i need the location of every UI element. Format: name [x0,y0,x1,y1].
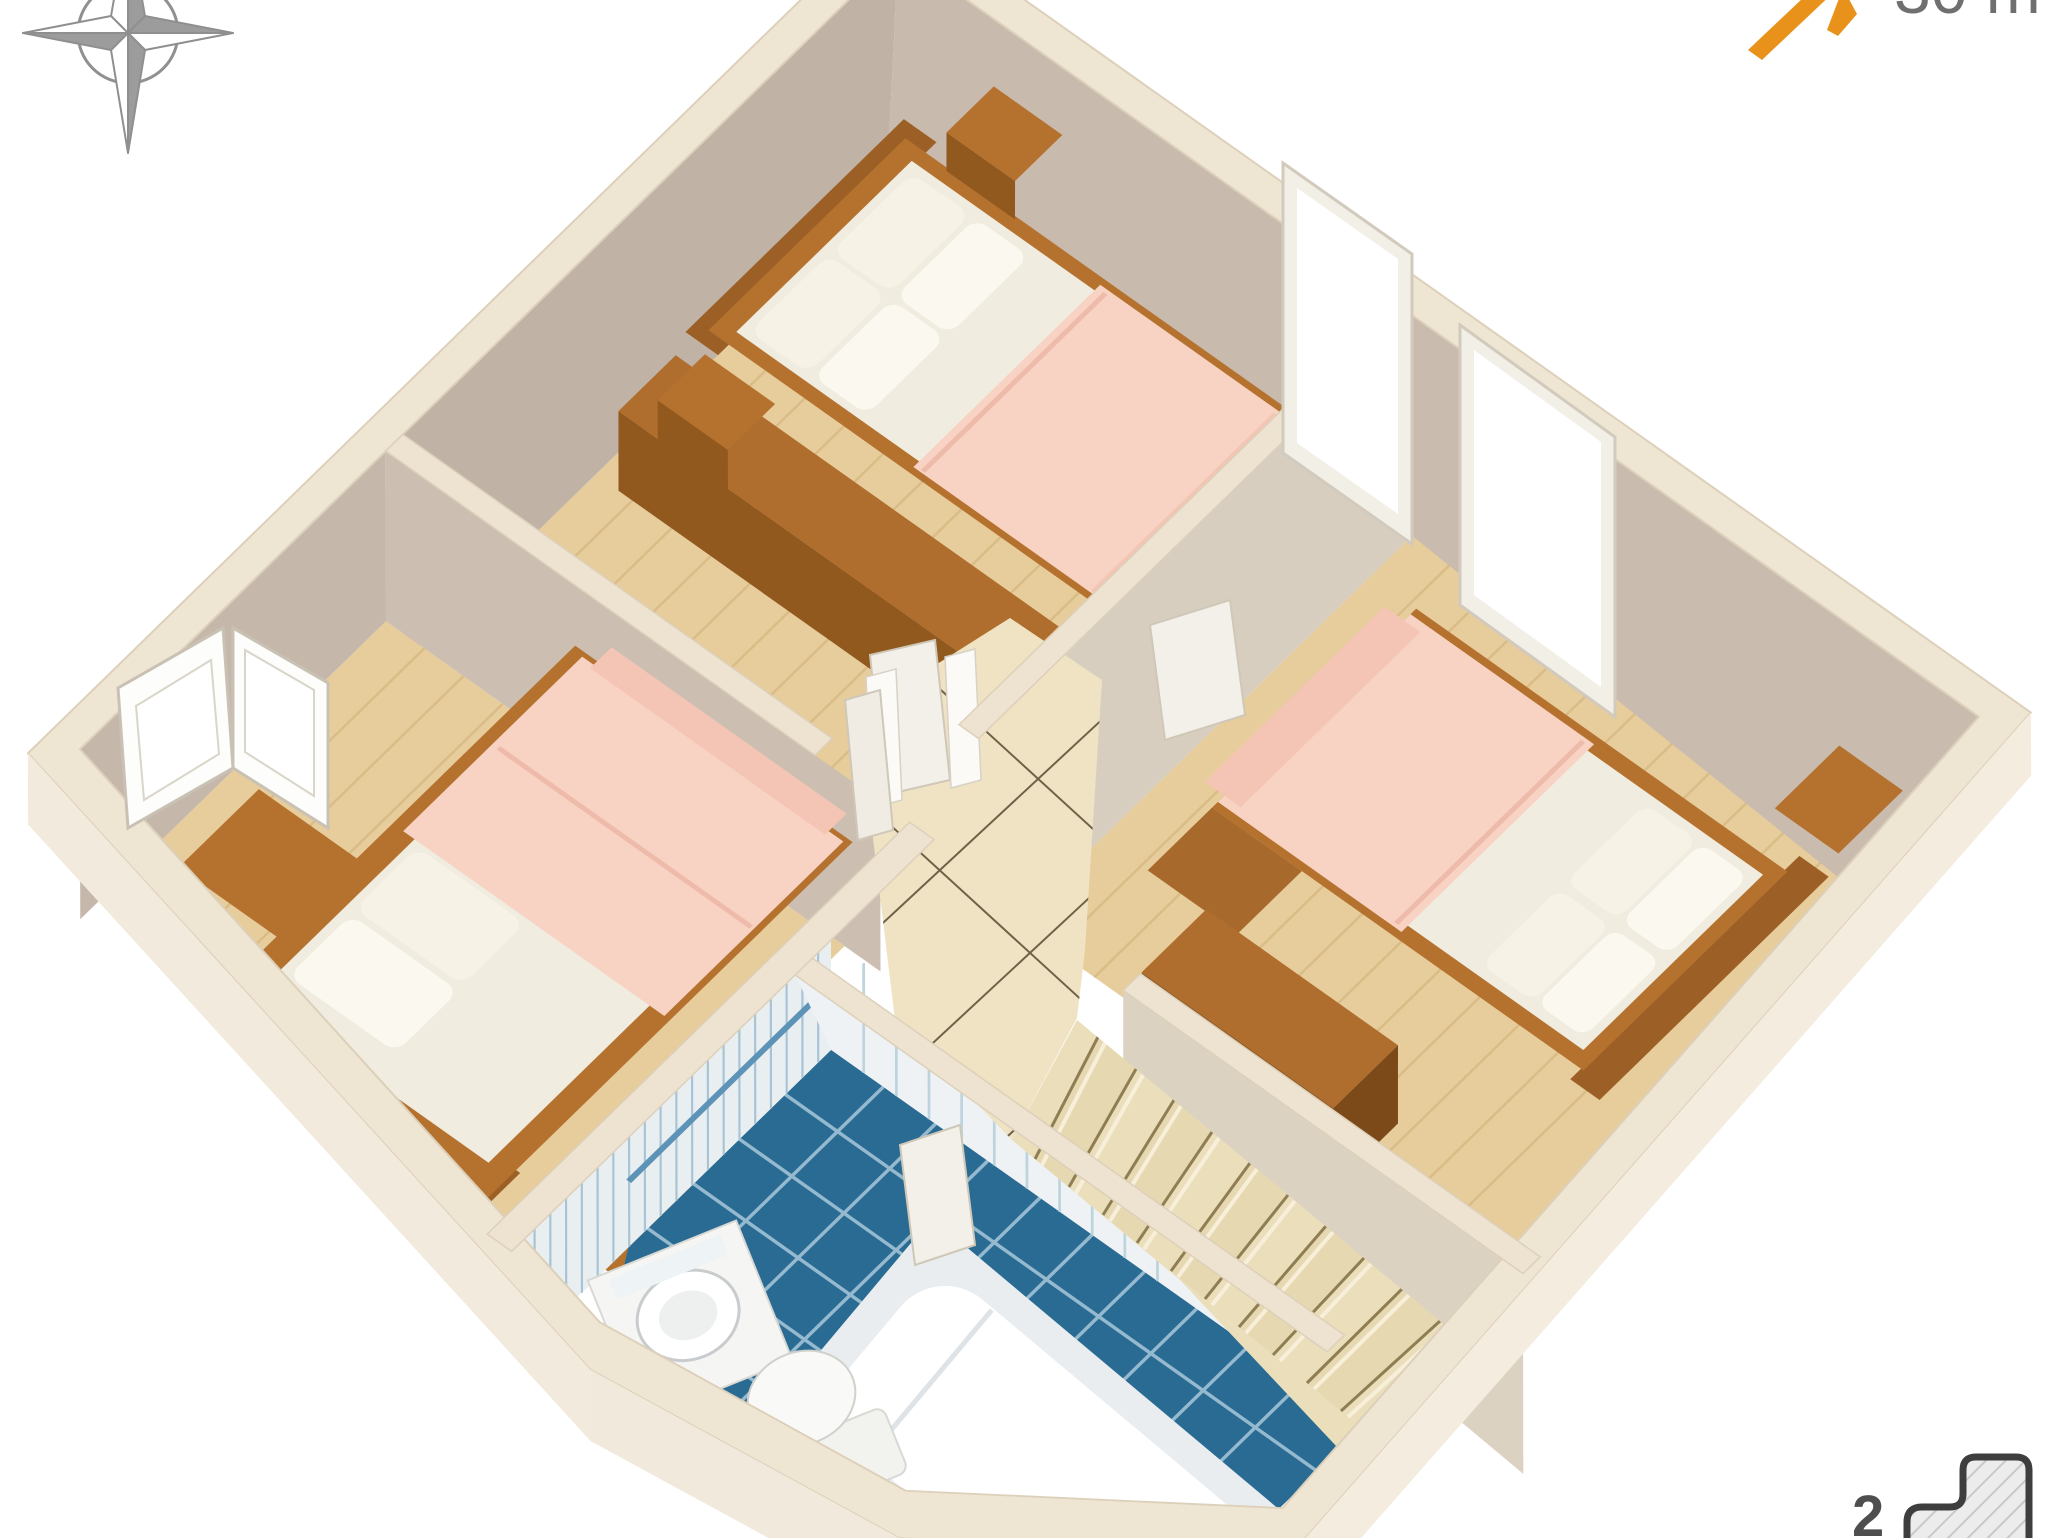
svg-text:2: 2 [1852,1484,1884,1538]
svg-text:30 m2: 30 m2 [1894,0,2048,27]
